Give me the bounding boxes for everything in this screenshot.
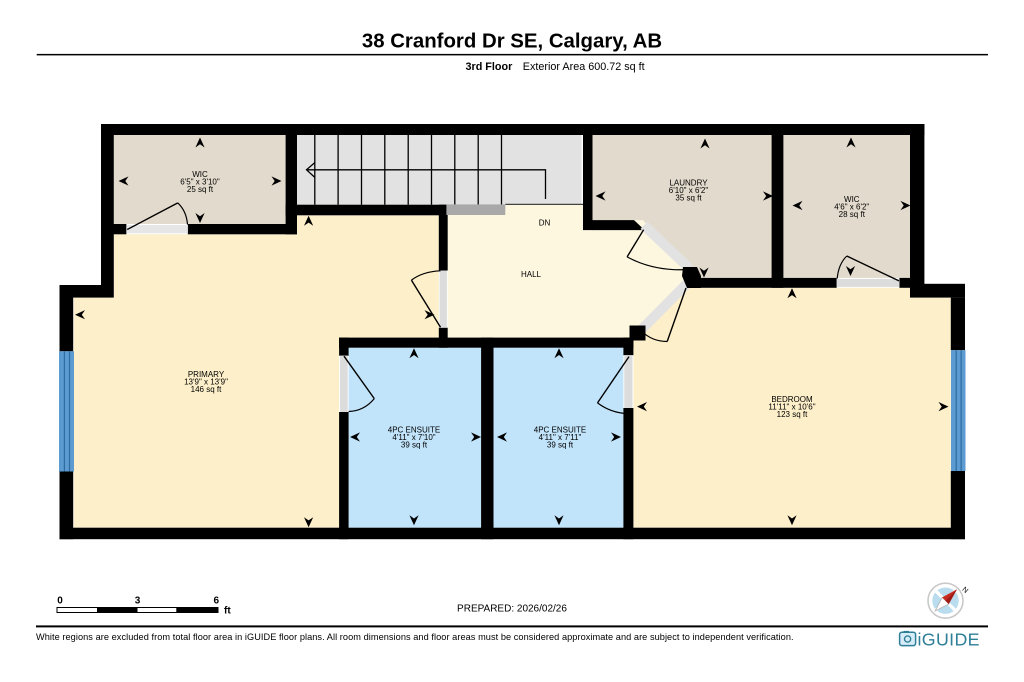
- svg-text:iGUIDE: iGUIDE: [918, 629, 980, 649]
- svg-text:0: 0: [57, 596, 63, 607]
- svg-text:Exterior Area 600.72 sq ft: Exterior Area 600.72 sq ft: [523, 61, 645, 73]
- svg-text:25 sq ft: 25 sq ft: [187, 185, 214, 194]
- svg-text:ft: ft: [224, 606, 231, 617]
- svg-text:3rd Floor: 3rd Floor: [466, 61, 514, 73]
- svg-text:39 sq ft: 39 sq ft: [401, 441, 428, 450]
- svg-text:PREPARED: 2026/02/26: PREPARED: 2026/02/26: [457, 604, 567, 615]
- svg-text:6: 6: [214, 596, 220, 607]
- svg-text:123 sq ft: 123 sq ft: [777, 410, 808, 419]
- svg-text:38 Cranford Dr SE, Calgary, AB: 38 Cranford Dr SE, Calgary, AB: [362, 31, 662, 53]
- svg-text:39 sq ft: 39 sq ft: [547, 441, 574, 450]
- svg-text:35 sq ft: 35 sq ft: [675, 194, 702, 203]
- svg-text:3: 3: [135, 596, 141, 607]
- svg-text:DN: DN: [539, 219, 551, 228]
- svg-text:28 sq ft: 28 sq ft: [839, 210, 866, 219]
- svg-text:146 sq ft: 146 sq ft: [191, 385, 222, 394]
- svg-text:HALL: HALL: [521, 270, 542, 279]
- svg-text:White regions are excluded fro: White regions are excluded from total fl…: [36, 632, 794, 642]
